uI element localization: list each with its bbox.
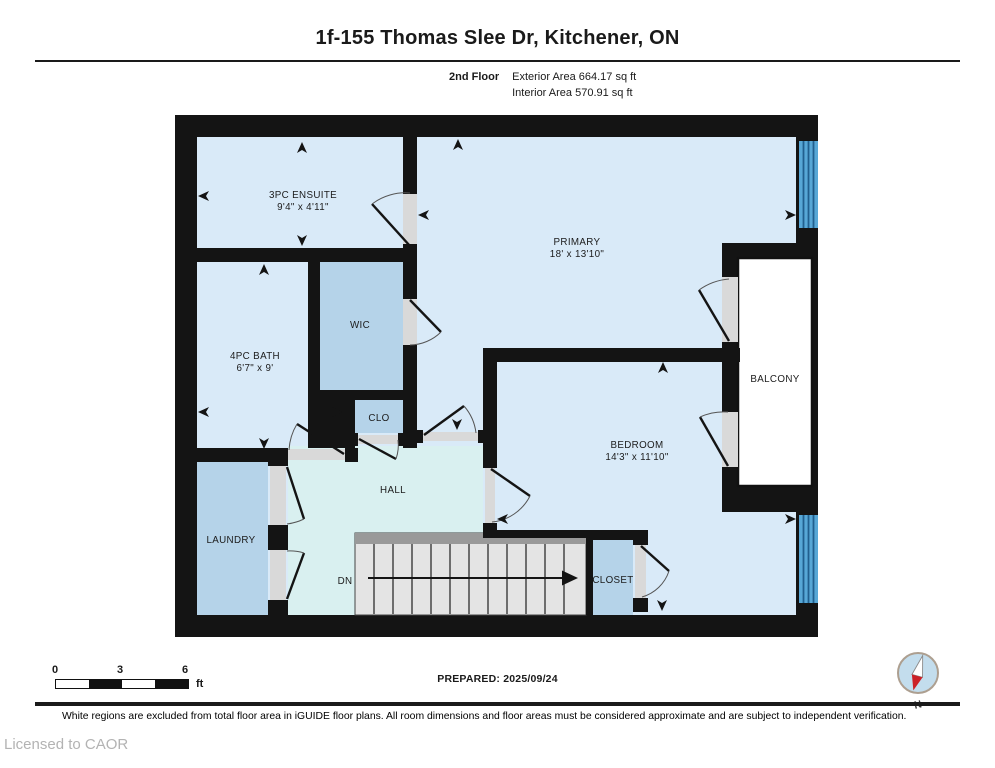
wic-label: WIC — [350, 320, 370, 331]
prepared-date: PREPARED: 2025/09/24 — [0, 673, 995, 685]
primary-label: PRIMARY — [554, 237, 601, 248]
laundry-label: LAUNDRY — [206, 535, 255, 546]
balcony-label: BALCONY — [750, 374, 799, 385]
floor-plan: 3PC ENSUITE 9'4" x 4'11" PRIMARY 18' x 1… — [0, 0, 995, 768]
footer-divider — [35, 702, 960, 706]
floorplan-page: 1f-155 Thomas Slee Dr, Kitchener, ON 2nd… — [0, 0, 995, 768]
primary-dims: 18' x 13'10" — [550, 249, 605, 260]
room-balcony — [738, 258, 812, 486]
bath-dims: 6'7" x 9' — [236, 363, 273, 374]
stairs-dn-label: DN — [338, 576, 353, 587]
clo-label: CLO — [368, 413, 389, 424]
window-bedroom — [799, 515, 818, 603]
window-primary — [799, 141, 818, 228]
stairs — [355, 533, 586, 615]
hall-label: HALL — [380, 485, 406, 496]
bath-label: 4PC BATH — [230, 351, 280, 362]
ensuite-label: 3PC ENSUITE — [269, 190, 337, 201]
bedroom-dims: 14'3" x 11'10" — [605, 452, 669, 463]
bedroom-label: BEDROOM — [610, 440, 663, 451]
closet-label: CLOSET — [592, 575, 633, 586]
disclaimer-text: White regions are excluded from total fl… — [62, 711, 955, 722]
ensuite-dims: 9'4" x 4'11" — [277, 202, 329, 213]
license-text: Licensed to CAOR — [4, 736, 128, 753]
